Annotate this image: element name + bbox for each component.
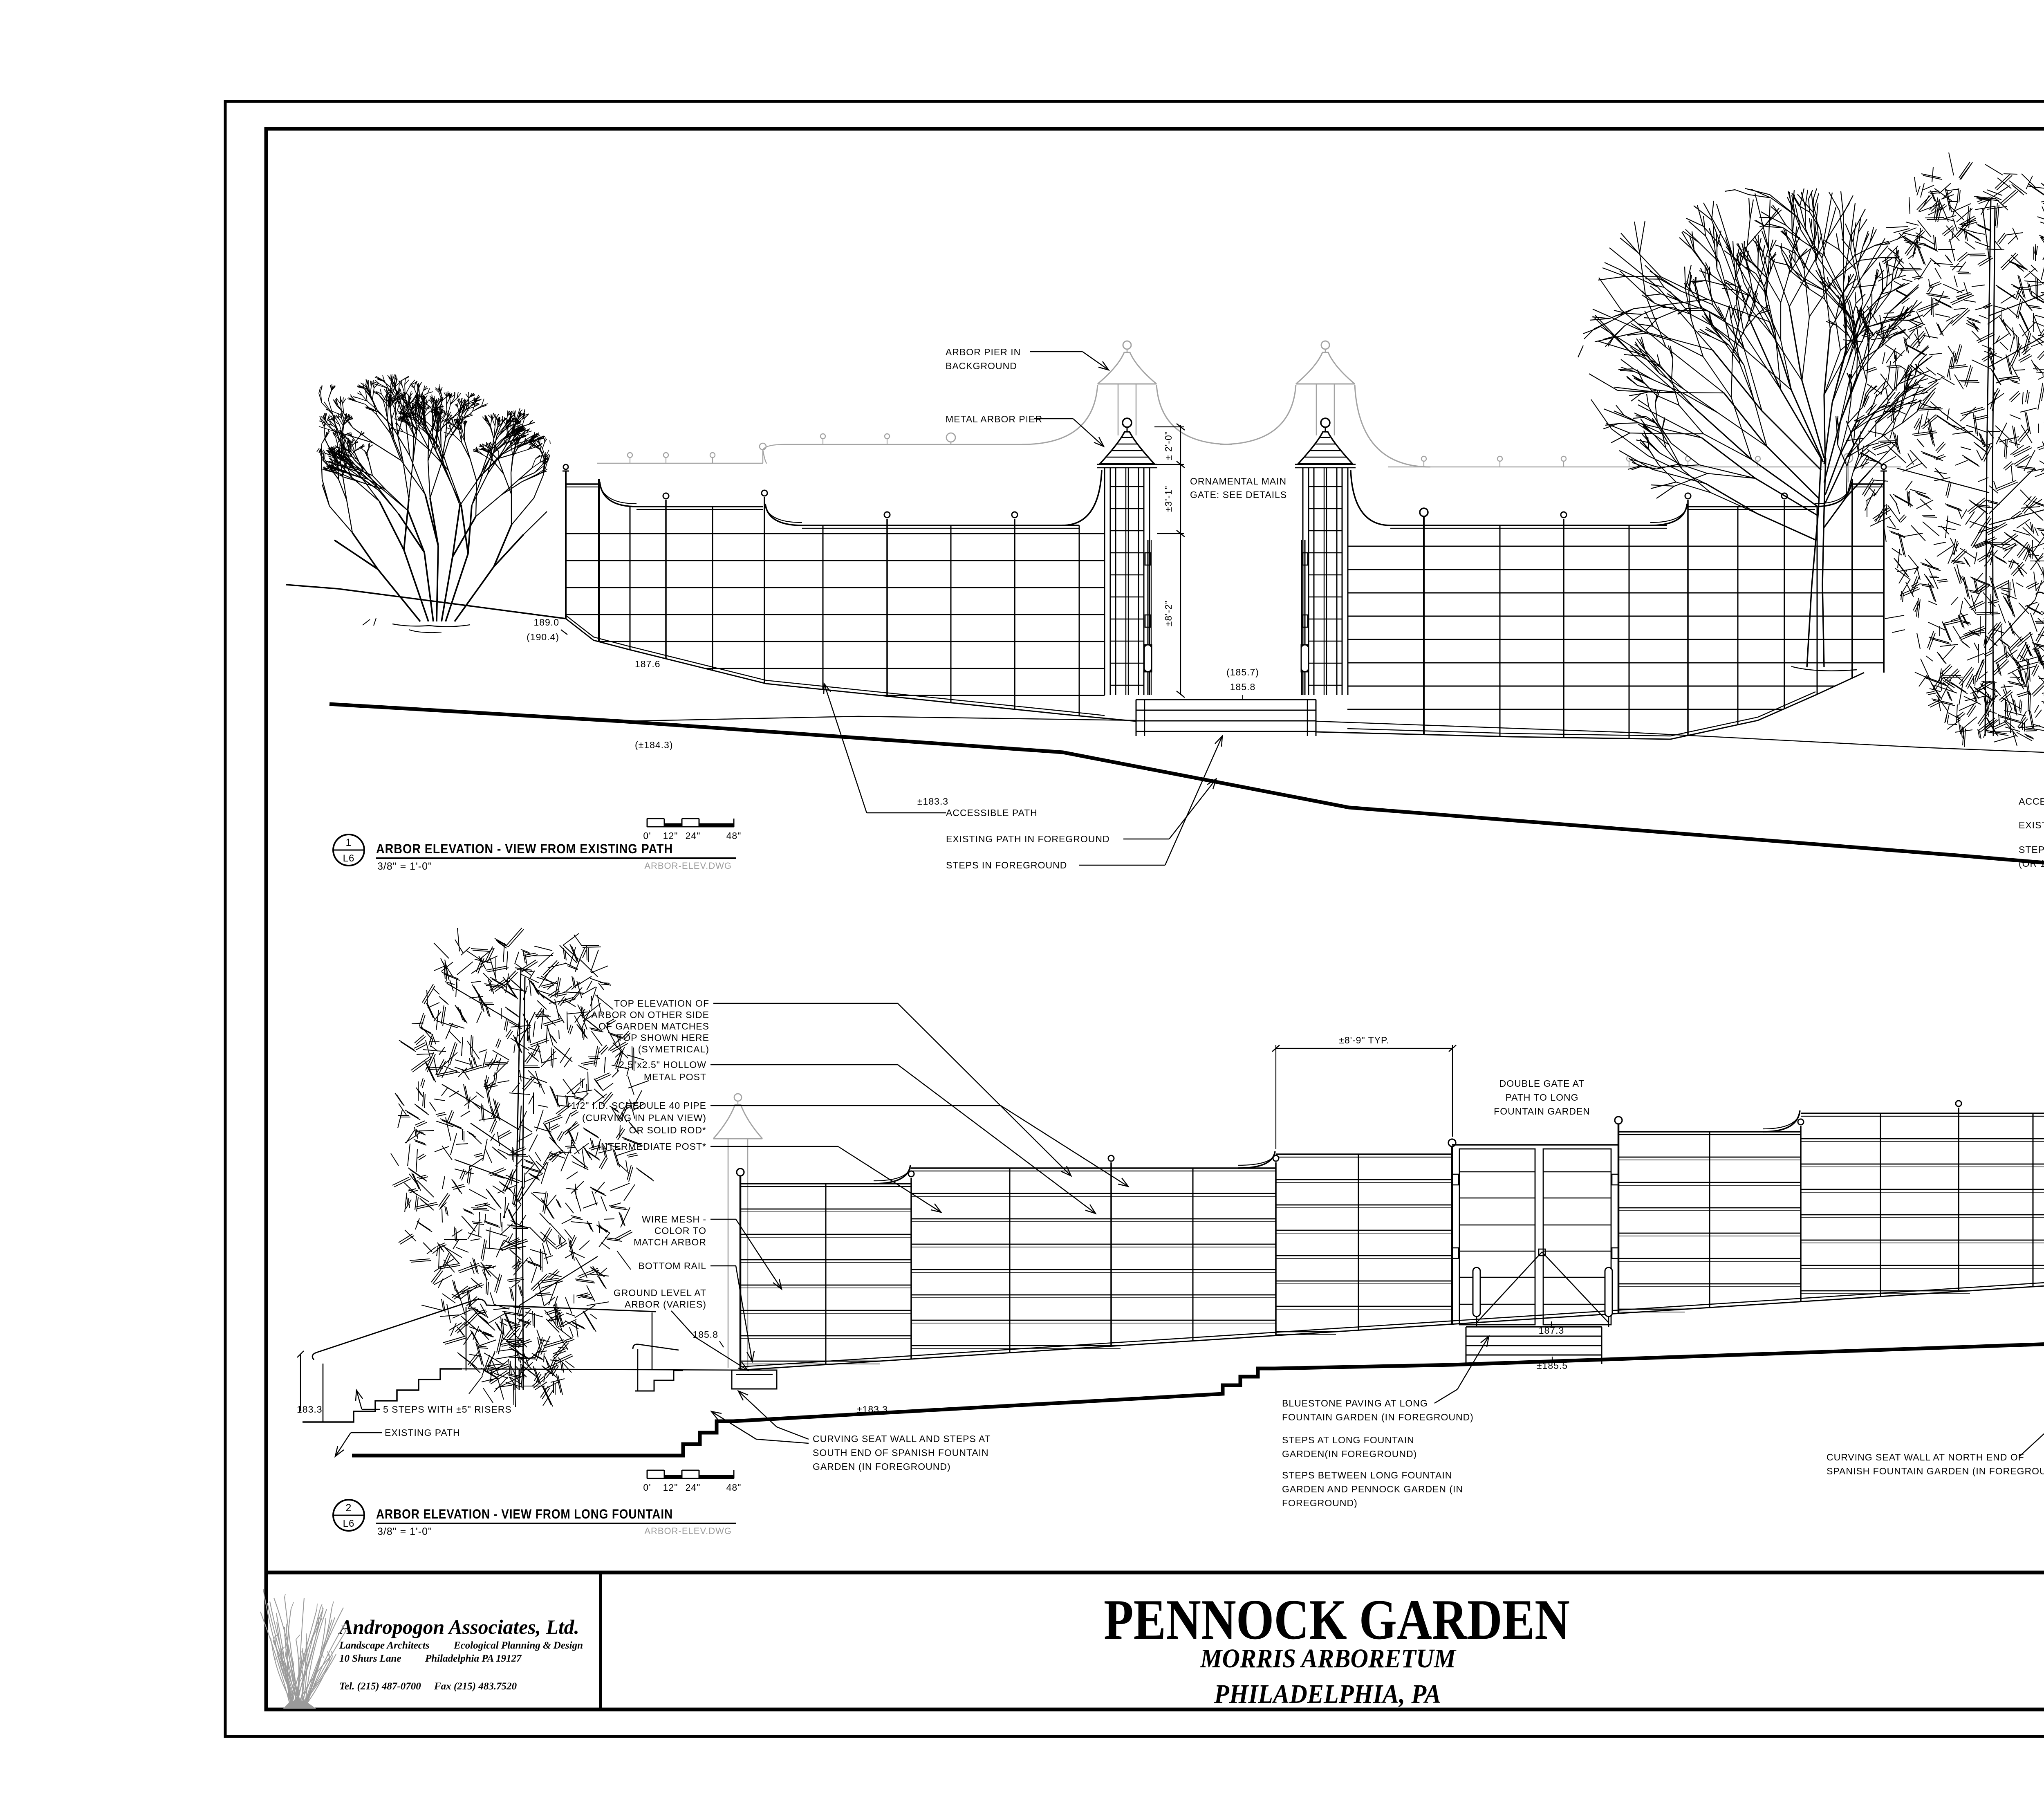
svg-text:48": 48" (726, 1482, 742, 1493)
svg-text:CURVING SEAT WALL AND STEPS AT: CURVING SEAT WALL AND STEPS AT (813, 1433, 991, 1444)
svg-text:SOUTH END OF SPANISH FOUNTAIN: SOUTH END OF SPANISH FOUNTAIN (813, 1447, 989, 1458)
svg-text:GARDEN(IN FOREGROUND): GARDEN(IN FOREGROUND) (1282, 1449, 1417, 1459)
svg-text:TOP SHOWN HERE: TOP SHOWN HERE (617, 1032, 709, 1043)
svg-text:±3'-1": ±3'-1" (1163, 486, 1174, 512)
svg-text:189.0: 189.0 (533, 617, 559, 628)
svg-text:BOTTOM RAIL: BOTTOM RAIL (639, 1261, 707, 1271)
svg-text:(190.4): (190.4) (527, 632, 559, 642)
svg-text:2: 2 (346, 1502, 352, 1514)
svg-text:ARBOR PIER IN: ARBOR PIER IN (946, 347, 1021, 357)
svg-text:±183.3: ±183.3 (917, 796, 948, 807)
svg-text:L6: L6 (343, 1518, 355, 1529)
svg-text:OF GARDEN MATCHES: OF GARDEN MATCHES (598, 1021, 709, 1032)
svg-text:ARBOR (VARIES): ARBOR (VARIES) (625, 1299, 706, 1310)
svg-text:(±184.3): (±184.3) (635, 740, 673, 750)
svg-text:EXISTING PATH IN FOREGROUND: EXISTING PATH IN FOREGROUND (2019, 820, 2044, 830)
svg-text:GARDEN AND PENNOCK GARDEN (IN: GARDEN AND PENNOCK GARDEN (IN (1282, 1484, 1463, 1494)
svg-text:WIRE MESH -: WIRE MESH - (642, 1214, 706, 1225)
svg-text:FOUNTAIN GARDEN (IN FOREGROUND: FOUNTAIN GARDEN (IN FOREGROUND) (1282, 1412, 1474, 1422)
svg-text:STEPS AT LONG FOUNTAIN: STEPS AT LONG FOUNTAIN (1282, 1435, 1414, 1445)
svg-text:±8'-2": ±8'-2" (1163, 600, 1174, 626)
svg-text:MORRIS ARBORETUM: MORRIS ARBORETUM (1200, 1644, 1457, 1673)
svg-text:0': 0' (643, 830, 651, 841)
svg-text:12": 12" (663, 1482, 678, 1493)
svg-text:MATCH ARBOR: MATCH ARBOR (634, 1237, 706, 1247)
svg-text:L6: L6 (343, 853, 355, 864)
svg-text:METAL ARBOR PIER: METAL ARBOR PIER (946, 414, 1042, 424)
svg-text:12": 12" (663, 830, 678, 841)
svg-text:±183.3: ±183.3 (857, 1404, 888, 1415)
svg-text:ARBOR-ELEV.DWG: ARBOR-ELEV.DWG (644, 1526, 732, 1536)
svg-text:48": 48" (726, 830, 742, 841)
svg-text:(CURVING IN PLAN VIEW): (CURVING IN PLAN VIEW) (582, 1113, 706, 1123)
svg-text:ARBOR ON OTHER SIDE: ARBOR ON OTHER SIDE (591, 1009, 709, 1020)
svg-text:0': 0' (643, 1482, 651, 1493)
svg-text:Andropogon Associates, Ltd.: Andropogon Associates, Ltd. (338, 1615, 579, 1638)
svg-text:Tel. (215) 487-0700: Tel. (215) 487-0700 (339, 1681, 421, 1692)
svg-text:1: 1 (346, 837, 352, 848)
svg-text:GATE: SEE DETAILS: GATE: SEE DETAILS (1190, 489, 1287, 500)
svg-text:ARBOR-ELEV.DWG: ARBOR-ELEV.DWG (644, 861, 732, 871)
svg-text:24": 24" (686, 1482, 701, 1493)
svg-text:BACKGROUND: BACKGROUND (946, 361, 1017, 371)
svg-text:GARDEN (IN FOREGROUND): GARDEN (IN FOREGROUND) (813, 1461, 951, 1472)
svg-text:Landscape Architects: Landscape Architects (339, 1640, 430, 1651)
svg-text:EXISTING PATH IN FOREGROUND: EXISTING PATH IN FOREGROUND (946, 834, 1110, 844)
svg-text:3/8" = 1'-0": 3/8" = 1'-0" (377, 1526, 432, 1537)
svg-text:Ecological Planning & Desig: Ecological Planning & Design (453, 1640, 583, 1651)
svg-text:(185.7): (185.7) (1226, 667, 1259, 677)
svg-text:ACCESSIBLE PATH: ACCESSIBLE PATH (946, 808, 1038, 818)
svg-text:24": 24" (686, 830, 701, 841)
svg-text:PENNOCK GARDEN: PENNOCK GARDEN (1104, 1588, 1570, 1651)
svg-text:(OR 12% SLOPED WALK): (OR 12% SLOPED WALK) (2019, 858, 2044, 869)
svg-text:SPANISH FOUNTAIN GARDEN (IN FO: SPANISH FOUNTAIN GARDEN (IN FOREGROUND) (1827, 1466, 2044, 1476)
svg-text:DOUBLE GATE AT: DOUBLE GATE AT (1499, 1078, 1585, 1089)
svg-text:ACCESSIBLE PATH: ACCESSIBLE PATH (2019, 796, 2044, 807)
svg-text:Philadelphia PA 19127: Philadelphia PA 19127 (425, 1653, 522, 1664)
svg-text:Fax (215) 483.7520: Fax (215) 483.7520 (434, 1681, 517, 1692)
svg-text:STEPS IN FOREGROUND: STEPS IN FOREGROUND (946, 860, 1067, 870)
svg-text:5 STEPS WITH ±5" RISERS: 5 STEPS WITH ±5" RISERS (383, 1404, 512, 1415)
svg-text:3/8" = 1'-0": 3/8" = 1'-0" (377, 861, 432, 872)
svg-text:10 Shurs Lane: 10 Shurs Lane (339, 1653, 401, 1664)
svg-text:ARBOR ELEVATION - VIEW FROM EX: ARBOR ELEVATION - VIEW FROM EXISTING PAT… (376, 841, 673, 856)
svg-text:TOP ELEVATION OF: TOP ELEVATION OF (614, 998, 709, 1009)
svg-text:FOUNTAIN GARDEN: FOUNTAIN GARDEN (1494, 1106, 1590, 1117)
svg-text:PHILADELPHIA, PA: PHILADELPHIA, PA (1214, 1679, 1441, 1709)
svg-text:± 2'-0": ± 2'-0" (1163, 431, 1174, 460)
svg-text:185.8: 185.8 (1230, 682, 1256, 692)
svg-text:STEPS BETWEEN LONG FOUNTAIN: STEPS BETWEEN LONG FOUNTAIN (1282, 1470, 1452, 1480)
svg-text:BLUESTONE PAVING AT LONG: BLUESTONE PAVING AT LONG (1282, 1398, 1428, 1409)
svg-text:OR SOLID ROD*: OR SOLID ROD* (629, 1125, 706, 1135)
svg-text:ARBOR ELEVATION - VIEW FROM LO: ARBOR ELEVATION - VIEW FROM LONG FOUNTAI… (376, 1507, 673, 1521)
svg-text:187.6: 187.6 (635, 659, 661, 669)
svg-text:STEPS IN FOREGROUND: STEPS IN FOREGROUND (2019, 844, 2044, 855)
svg-text:1/2" I.D. SCHEDULE 40 PIPE: 1/2" I.D. SCHEDULE 40 PIPE (571, 1100, 706, 1111)
svg-text:CURVING SEAT WALL AT NORTH END: CURVING SEAT WALL AT NORTH END OF (1827, 1452, 2024, 1463)
svg-text:(SYMETRICAL): (SYMETRICAL) (638, 1044, 709, 1054)
svg-text:EXISTING PATH: EXISTING PATH (385, 1427, 460, 1438)
svg-text:PATH TO LONG: PATH TO LONG (1506, 1092, 1579, 1103)
svg-text:COLOR TO: COLOR TO (654, 1225, 706, 1236)
svg-text:GROUND LEVEL AT: GROUND LEVEL AT (614, 1288, 706, 1298)
svg-text:ORNAMENTAL MAIN: ORNAMENTAL MAIN (1190, 476, 1286, 487)
svg-text:METAL POST: METAL POST (644, 1072, 706, 1082)
svg-text:±8'-9" TYP.: ±8'-9" TYP. (1339, 1035, 1390, 1045)
svg-text:FOREGROUND): FOREGROUND) (1282, 1498, 1358, 1508)
svg-text:±185.5: ±185.5 (1537, 1360, 1568, 1371)
